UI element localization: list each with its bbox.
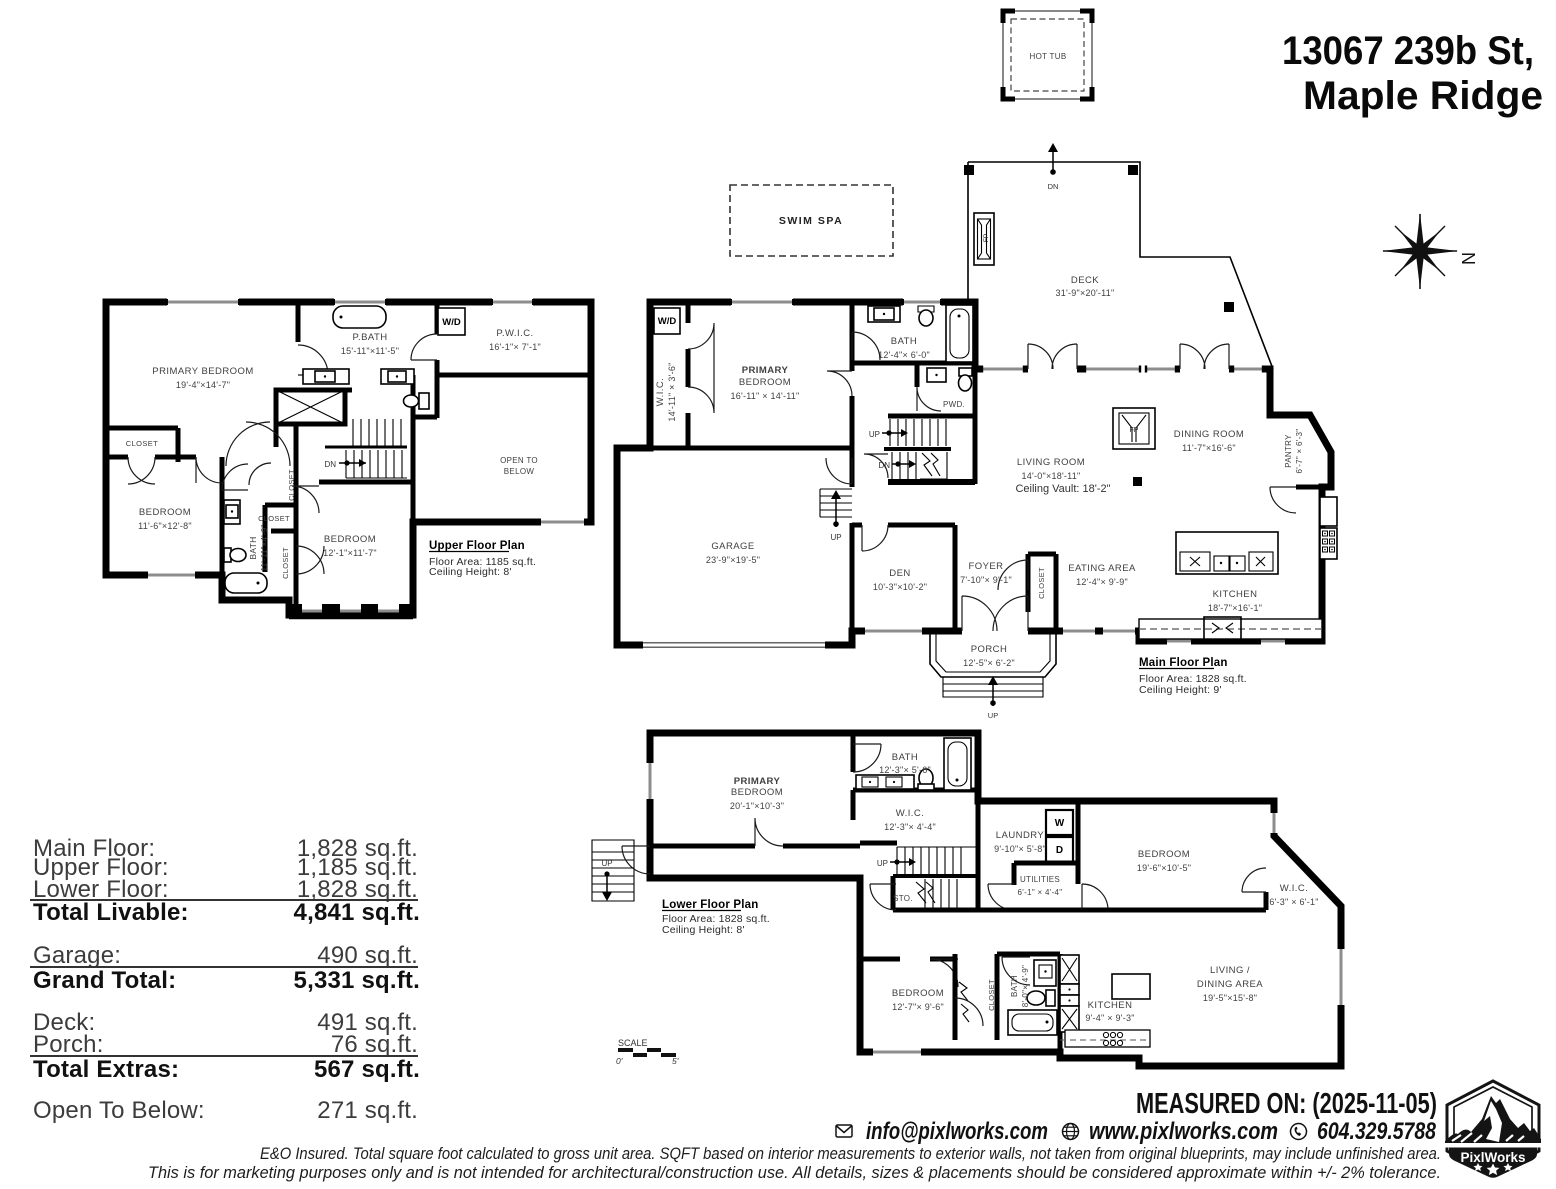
- svg-text:5': 5': [672, 1056, 679, 1066]
- svg-text:This is for marketing purposes: This is for marketing purposes only and …: [148, 1164, 1441, 1182]
- svg-text:Ceiling Vault: 18'-2": Ceiling Vault: 18'-2": [1015, 483, 1110, 495]
- svg-text:BATH: BATH: [1010, 975, 1019, 997]
- svg-text:19'-6"×10'-5": 19'-6"×10'-5": [1137, 863, 1191, 873]
- svg-text:FOYER: FOYER: [969, 561, 1004, 572]
- svg-text:12'-1"×11'-7": 12'-1"×11'-7": [323, 548, 377, 558]
- svg-text:BEDROOM: BEDROOM: [1138, 849, 1190, 860]
- svg-text:14'-0"×18'-11": 14'-0"×18'-11": [1022, 471, 1081, 481]
- svg-text:11'-7"×16'-6": 11'-7"×16'-6": [1182, 443, 1236, 453]
- svg-text:31'-9"×20'-11": 31'-9"×20'-11": [1056, 288, 1115, 298]
- svg-text:CLOSET: CLOSET: [987, 979, 996, 1011]
- svg-text:16'-1"× 7'-1": 16'-1"× 7'-1": [489, 342, 541, 352]
- svg-text:UTILITIES: UTILITIES: [1020, 875, 1060, 884]
- svg-text:Ceiling Height: 8': Ceiling Height: 8': [662, 924, 745, 936]
- svg-text:DEN: DEN: [889, 568, 910, 579]
- svg-text:CLOSET: CLOSET: [126, 439, 158, 448]
- svg-text:4,841 sq.ft.: 4,841 sq.ft.: [294, 899, 420, 926]
- svg-text:CLOSET: CLOSET: [258, 514, 290, 523]
- svg-text:LAUNDRY: LAUNDRY: [996, 830, 1045, 841]
- svg-text:PRIMARY BEDROOM: PRIMARY BEDROOM: [152, 366, 253, 377]
- svg-text:W/D: W/D: [442, 317, 461, 328]
- svg-text:9'-10"× 5'-8": 9'-10"× 5'-8": [994, 844, 1046, 854]
- svg-text:8'-0"× 4'-9": 8'-0"× 4'-9": [1021, 965, 1030, 1007]
- svg-text:PORCH: PORCH: [971, 644, 1008, 655]
- svg-text:P.W.I.C.: P.W.I.C.: [496, 328, 533, 339]
- svg-text:19'-5"×15'-8": 19'-5"×15'-8": [1203, 993, 1257, 1003]
- svg-text:KITCHEN: KITCHEN: [1088, 1000, 1133, 1011]
- svg-text:DN: DN: [1048, 182, 1059, 191]
- svg-text:UP: UP: [601, 859, 612, 868]
- svg-text:PWD.: PWD.: [943, 400, 965, 409]
- svg-text:BEDROOM: BEDROOM: [731, 787, 783, 798]
- svg-text:Lower Floor Plan: Lower Floor Plan: [662, 899, 759, 911]
- svg-text:9'-4" × 9'-3": 9'-4" × 9'-3": [1085, 1013, 1134, 1023]
- svg-text:BEDROOM: BEDROOM: [139, 507, 191, 518]
- svg-text:CLOSET: CLOSET: [1037, 567, 1046, 599]
- svg-text:7'-10"× 9'-1": 7'-10"× 9'-1": [960, 575, 1012, 585]
- svg-text:GARAGE: GARAGE: [711, 541, 754, 552]
- svg-text:BATH: BATH: [248, 536, 258, 559]
- svg-text:11'-6"×12'-8": 11'-6"×12'-8": [138, 521, 192, 531]
- svg-text:UP: UP: [988, 711, 998, 720]
- svg-text:12'-7"× 9'-6": 12'-7"× 9'-6": [892, 1002, 944, 1012]
- svg-text:LIVING ROOM: LIVING ROOM: [1017, 457, 1085, 468]
- svg-text:12'-4"× 9'-9": 12'-4"× 9'-9": [1076, 577, 1128, 587]
- svg-text:16'-11" × 14'-11": 16'-11" × 14'-11": [730, 391, 799, 401]
- svg-text:76 sq.ft.: 76 sq.ft.: [331, 1031, 418, 1058]
- svg-text:PixlWorks: PixlWorks: [1460, 1150, 1525, 1165]
- svg-text:6'-3" × 6'-1": 6'-3" × 6'-1": [1269, 897, 1318, 907]
- svg-text:W.I.C.: W.I.C.: [896, 808, 925, 819]
- svg-text:5,331 sq.ft.: 5,331 sq.ft.: [294, 967, 420, 994]
- svg-text:BATH: BATH: [892, 752, 918, 763]
- svg-text:Total Extras:: Total Extras:: [33, 1056, 179, 1083]
- svg-text:FP: FP: [1130, 427, 1139, 434]
- svg-text:info@pixlworks.com: info@pixlworks.com: [866, 1118, 1048, 1145]
- svg-text:Garage:: Garage:: [33, 942, 121, 969]
- svg-text:SWIM SPA: SWIM SPA: [779, 215, 843, 227]
- svg-text:D: D: [1056, 845, 1063, 856]
- svg-text:0': 0': [616, 1056, 623, 1066]
- svg-text:SCALE: SCALE: [618, 1038, 648, 1048]
- svg-text:CLOSET: CLOSET: [287, 469, 296, 501]
- svg-text:W: W: [1055, 818, 1065, 829]
- svg-text:12'-3"× 5'-6": 12'-3"× 5'-6": [879, 765, 931, 775]
- svg-text:KITCHEN: KITCHEN: [1213, 589, 1258, 600]
- svg-text:20'-1"×10'-3": 20'-1"×10'-3": [730, 801, 784, 811]
- svg-text:DINING AREA: DINING AREA: [1197, 979, 1263, 990]
- svg-text:12'-3"× 4'-4": 12'-3"× 4'-4": [884, 822, 936, 832]
- svg-text:DN: DN: [324, 460, 336, 469]
- svg-text:www.pixlworks.com: www.pixlworks.com: [1089, 1118, 1278, 1145]
- svg-text:18'-7"×16'-1": 18'-7"×16'-1": [1208, 603, 1262, 613]
- svg-text:271 sq.ft.: 271 sq.ft.: [317, 1097, 418, 1124]
- svg-text:Open To Below:: Open To Below:: [33, 1097, 205, 1124]
- svg-text:UP: UP: [830, 533, 841, 542]
- svg-text:19'-4"×14'-7": 19'-4"×14'-7": [176, 380, 230, 390]
- svg-text:Maple Ridge: Maple Ridge: [1303, 74, 1543, 118]
- svg-text:PRIMARY: PRIMARY: [734, 776, 781, 787]
- svg-text:STO.: STO.: [893, 894, 913, 903]
- svg-text:BELOW: BELOW: [504, 467, 535, 476]
- svg-text:HOT TUB: HOT TUB: [1030, 52, 1067, 61]
- svg-text:CLOSET: CLOSET: [281, 547, 290, 579]
- svg-text:UP: UP: [877, 859, 888, 868]
- svg-text:BEDROOM: BEDROOM: [739, 377, 791, 388]
- svg-text:OPEN TO: OPEN TO: [500, 456, 538, 465]
- svg-text:12'-4"× 6'-0": 12'-4"× 6'-0": [878, 350, 930, 360]
- svg-text:Porch:: Porch:: [33, 1031, 104, 1058]
- svg-text:Ceiling Height: 8': Ceiling Height: 8': [429, 566, 512, 578]
- svg-text:P.BATH: P.BATH: [352, 332, 387, 343]
- svg-text:604.329.5788: 604.329.5788: [1317, 1118, 1436, 1145]
- svg-text:DECK: DECK: [1071, 275, 1099, 286]
- svg-text:23'-9"×19'-5": 23'-9"×19'-5": [706, 555, 760, 565]
- svg-text:BATH: BATH: [891, 336, 917, 347]
- svg-text:Total Livable:: Total Livable:: [33, 899, 189, 926]
- svg-text:15'-11"×11'-5": 15'-11"×11'-5": [341, 346, 399, 356]
- svg-text:UP: UP: [869, 430, 880, 439]
- svg-text:EATING AREA: EATING AREA: [1068, 563, 1136, 574]
- svg-text:W.I.C.: W.I.C.: [655, 378, 666, 407]
- svg-text:Main Floor Plan: Main Floor Plan: [1139, 657, 1228, 669]
- svg-text:W.I.C.: W.I.C.: [1280, 883, 1309, 894]
- svg-text:Ceiling Height: 9': Ceiling Height: 9': [1139, 684, 1222, 696]
- svg-text:MEASURED ON: (2025-11-05): MEASURED ON: (2025-11-05): [1136, 1088, 1437, 1120]
- svg-text:11'-11"×4'-9": 11'-11"×4'-9": [260, 525, 269, 572]
- svg-text:PANTRY: PANTRY: [1284, 434, 1293, 468]
- svg-text:6'-1" × 4'-4": 6'-1" × 4'-4": [1018, 888, 1063, 897]
- svg-text:10'-3"×10'-2": 10'-3"×10'-2": [873, 582, 927, 592]
- svg-text:Upper Floor Plan: Upper Floor Plan: [429, 540, 525, 552]
- svg-text:BEDROOM: BEDROOM: [324, 534, 376, 545]
- svg-text:N: N: [1458, 252, 1478, 265]
- svg-text:567 sq.ft.: 567 sq.ft.: [314, 1056, 420, 1083]
- svg-text:W/D: W/D: [658, 316, 677, 327]
- svg-text:BEDROOM: BEDROOM: [892, 988, 944, 999]
- svg-text:DINING ROOM: DINING ROOM: [1174, 429, 1244, 440]
- svg-text:PRIMARY: PRIMARY: [742, 365, 789, 376]
- svg-text:12'-5"× 6'-2": 12'-5"× 6'-2": [963, 658, 1015, 668]
- svg-text:Grand Total:: Grand Total:: [33, 967, 176, 994]
- svg-text:6'-7" × 6'-3": 6'-7" × 6'-3": [1295, 429, 1304, 474]
- svg-text:FP: FP: [983, 234, 990, 242]
- svg-text:13067 239b St,: 13067 239b St,: [1282, 29, 1534, 73]
- svg-text:14'-11" × 3'-6": 14'-11" × 3'-6": [667, 362, 677, 421]
- svg-text:LIVING /: LIVING /: [1210, 965, 1250, 976]
- svg-text:490 sq.ft.: 490 sq.ft.: [317, 942, 418, 969]
- svg-text:E&O Insured. Total square foo: E&O Insured. Total square foot calculate…: [260, 1145, 1441, 1163]
